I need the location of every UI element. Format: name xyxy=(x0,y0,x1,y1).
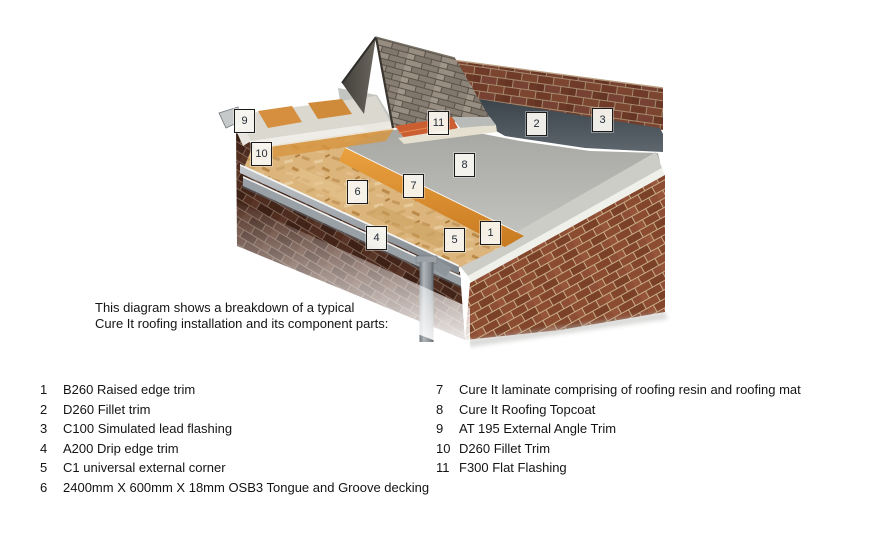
marker-3-label: 3 xyxy=(599,114,605,126)
marker-11-label: 11 xyxy=(433,117,444,129)
marker-1-label: 1 xyxy=(487,227,493,239)
legend-item: 5C1 universal external corner xyxy=(40,458,429,478)
legend-item-label: AT 195 External Angle Trim xyxy=(459,419,616,439)
marker-9-label: 9 xyxy=(241,115,247,127)
marker-6-label: 6 xyxy=(354,186,360,198)
page: 1 2 3 4 5 6 7 8 9 10 11 This diagram sho… xyxy=(0,0,871,537)
legend-item: 1B260 Raised edge trim xyxy=(40,380,429,400)
legend-item-number: 3 xyxy=(40,419,63,439)
marker-6: 6 xyxy=(347,180,368,204)
legend-column-left: 1B260 Raised edge trim 2D260 Fillet trim… xyxy=(40,380,429,498)
marker-4-label: 4 xyxy=(373,232,379,244)
legend-item-number: 9 xyxy=(436,419,459,439)
legend-item: 10D260 Fillet Trim xyxy=(436,439,801,459)
marker-8: 8 xyxy=(454,153,475,177)
marker-8-label: 8 xyxy=(461,159,467,171)
legend-item: 62400mm X 600mm X 18mm OSB3 Tongue and G… xyxy=(40,478,429,498)
legend-item-number: 7 xyxy=(436,380,459,400)
legend-item: 7Cure It laminate comprising of roofing … xyxy=(436,380,801,400)
marker-2-label: 2 xyxy=(533,118,539,130)
legend-item-number: 10 xyxy=(436,439,459,459)
marker-4: 4 xyxy=(366,226,387,250)
legend-item: 2D260 Fillet trim xyxy=(40,400,429,420)
intro-line-1: This diagram shows a breakdown of a typi… xyxy=(95,300,388,316)
marker-5-label: 5 xyxy=(451,234,457,246)
marker-1: 1 xyxy=(480,221,501,245)
marker-10-label: 10 xyxy=(255,148,267,160)
legend-item-number: 1 xyxy=(40,380,63,400)
marker-7: 7 xyxy=(403,174,424,198)
legend-item-label: D260 Fillet Trim xyxy=(459,439,550,459)
legend-item-label: Cure It Roofing Topcoat xyxy=(459,400,595,420)
legend-item-label: F300 Flat Flashing xyxy=(459,458,567,478)
legend-item-number: 6 xyxy=(40,478,63,498)
legend-column-right: 7Cure It laminate comprising of roofing … xyxy=(436,380,801,478)
legend-item: 3C100 Simulated lead flashing xyxy=(40,419,429,439)
marker-11: 11 xyxy=(428,111,449,135)
legend-item-label: Cure It laminate comprising of roofing r… xyxy=(459,380,801,400)
legend-item-label: D260 Fillet trim xyxy=(63,400,150,420)
legend-item-label: C100 Simulated lead flashing xyxy=(63,419,232,439)
intro-line-2: Cure It roofing installation and its com… xyxy=(95,316,388,332)
marker-3: 3 xyxy=(592,108,613,132)
legend-item-label: A200 Drip edge trim xyxy=(63,439,179,459)
marker-10: 10 xyxy=(251,142,272,166)
marker-7-label: 7 xyxy=(410,180,416,192)
marker-5: 5 xyxy=(444,228,465,252)
legend-item-number: 4 xyxy=(40,439,63,459)
legend-item-number: 11 xyxy=(436,458,459,478)
marker-2: 2 xyxy=(526,112,547,136)
marker-9: 9 xyxy=(234,109,255,133)
legend-item-label: 2400mm X 600mm X 18mm OSB3 Tongue and Gr… xyxy=(63,478,429,498)
intro-caption: This diagram shows a breakdown of a typi… xyxy=(95,300,388,332)
legend-item-label: C1 universal external corner xyxy=(63,458,226,478)
legend-item-label: B260 Raised edge trim xyxy=(63,380,195,400)
legend-item: 9AT 195 External Angle Trim xyxy=(436,419,801,439)
legend-item: 11F300 Flat Flashing xyxy=(436,458,801,478)
legend-item-number: 2 xyxy=(40,400,63,420)
legend-item-number: 5 xyxy=(40,458,63,478)
legend-item: 8Cure It Roofing Topcoat xyxy=(436,400,801,420)
legend-item-number: 8 xyxy=(436,400,459,420)
legend-item: 4A200 Drip edge trim xyxy=(40,439,429,459)
